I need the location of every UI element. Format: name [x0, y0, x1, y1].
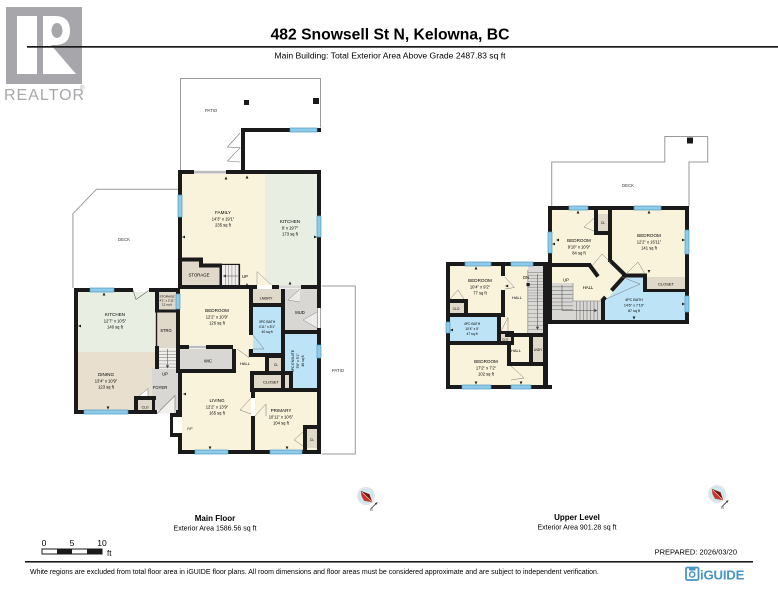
svg-text:4PC BATH: 4PC BATH	[625, 298, 643, 302]
svg-text:KITCHEN: KITCHEN	[105, 312, 125, 317]
svg-text:87 sq ft: 87 sq ft	[628, 309, 640, 313]
svg-text:HALL: HALL	[583, 285, 594, 290]
svg-text:FAMILY: FAMILY	[215, 210, 231, 215]
svg-text:CL: CL	[310, 438, 314, 442]
svg-text:5: 5	[70, 538, 75, 548]
svg-text:165 sq ft: 165 sq ft	[209, 411, 226, 416]
svg-text:12 sq ft: 12 sq ft	[162, 303, 172, 307]
svg-text:0: 0	[42, 538, 47, 548]
svg-text:®: ®	[80, 84, 85, 92]
svg-text:UP: UP	[563, 278, 569, 283]
svg-text:Exterior Area 1586.56 sq ft: Exterior Area 1586.56 sq ft	[174, 526, 257, 533]
svg-text:Exterior Area 901.28 sq ft: Exterior Area 901.28 sq ft	[538, 525, 617, 532]
svg-text:4'11" x 8'1": 4'11" x 8'1"	[259, 325, 276, 329]
svg-text:HALL: HALL	[511, 348, 522, 353]
svg-text:BEDROOM: BEDROOM	[205, 308, 229, 313]
svg-text:BEDROOM: BEDROOM	[474, 359, 498, 364]
svg-text:KITCHEN: KITCHEN	[280, 219, 300, 224]
svg-text:17'2" x 7'2": 17'2" x 7'2"	[476, 366, 497, 371]
svg-text:N: N	[370, 508, 373, 512]
svg-text:84 sq ft: 84 sq ft	[572, 251, 586, 256]
svg-text:WIC: WIC	[204, 359, 212, 364]
svg-text:141 sq ft: 141 sq ft	[641, 246, 658, 251]
svg-text:12'2" x 16'11": 12'2" x 16'11"	[637, 240, 662, 245]
svg-text:123 sq ft: 123 sq ft	[98, 385, 115, 390]
svg-text:UP: UP	[162, 372, 168, 377]
svg-text:F/P: F/P	[187, 427, 193, 431]
svg-text:12'2" x 13'9": 12'2" x 13'9"	[206, 405, 229, 410]
svg-text:CLO: CLO	[502, 338, 509, 342]
svg-text:46 sq ft: 46 sq ft	[301, 355, 305, 366]
svg-text:10'11" x 10'6": 10'11" x 10'6"	[269, 415, 294, 420]
svg-text:PATIO: PATIO	[332, 368, 345, 373]
svg-text:47 sq ft: 47 sq ft	[466, 332, 477, 336]
svg-text:White regions are excluded fro: White regions are excluded from total fl…	[30, 569, 599, 576]
svg-text:LIVING: LIVING	[209, 398, 224, 403]
svg-text:Main Floor: Main Floor	[195, 514, 235, 523]
svg-text:3PC ENSUITE: 3PC ENSUITE	[291, 349, 295, 372]
svg-text:10'4" x 9'2": 10'4" x 9'2"	[470, 285, 491, 290]
svg-text:14'6" x 7'10": 14'6" x 7'10"	[624, 304, 645, 308]
svg-text:HALL: HALL	[512, 295, 523, 300]
svg-text:173 sq ft: 173 sq ft	[282, 232, 299, 237]
svg-text:3PC BATH: 3PC BATH	[259, 320, 276, 324]
svg-text:STORAGE: STORAGE	[189, 273, 210, 278]
svg-text:DINING: DINING	[98, 372, 115, 377]
svg-text:PRIMARY: PRIMARY	[271, 408, 292, 413]
svg-text:4PC BATH: 4PC BATH	[464, 322, 481, 326]
svg-text:9' x 19'7": 9' x 19'7"	[282, 226, 299, 231]
svg-text:DECK: DECK	[118, 237, 130, 242]
svg-text:13'4" x 10'9": 13'4" x 10'9"	[95, 379, 118, 384]
svg-text:CL: CL	[274, 363, 278, 367]
svg-text:FOYER: FOYER	[153, 385, 168, 390]
svg-text:9'10" x 10'9": 9'10" x 10'9"	[568, 245, 591, 250]
svg-text:77 sq ft: 77 sq ft	[473, 291, 487, 296]
svg-text:102 sq ft: 102 sq ft	[478, 372, 495, 377]
svg-text:PATIO: PATIO	[205, 108, 218, 113]
svg-text:CL: CL	[601, 221, 605, 225]
svg-text:LNDY: LNDY	[534, 348, 543, 352]
svg-text:PREPARED: 2026/03/20: PREPARED: 2026/03/20	[655, 548, 737, 557]
svg-text:104 sq ft: 104 sq ft	[273, 421, 290, 426]
svg-text:CLO: CLO	[453, 307, 460, 311]
svg-text:482 Snowsell St N, Kelowna, BC: 482 Snowsell St N, Kelowna, BC	[271, 27, 510, 44]
svg-text:REALTOR: REALTOR	[4, 87, 85, 104]
svg-text:N: N	[721, 506, 724, 510]
svg-text:DECK: DECK	[622, 183, 634, 188]
svg-text:CLOSET: CLOSET	[658, 282, 675, 287]
svg-text:Main Building: Total Exterior: Main Building: Total Exterior Area Above…	[274, 51, 506, 61]
svg-text:126 sq ft: 126 sq ft	[209, 321, 226, 326]
svg-text:DN: DN	[523, 275, 529, 280]
svg-text:235 sq ft: 235 sq ft	[215, 223, 232, 228]
svg-text:MUD: MUD	[295, 310, 305, 315]
svg-text:12'2" x 10'9": 12'2" x 10'9"	[206, 315, 229, 320]
svg-text:BEDROOM: BEDROOM	[567, 238, 591, 243]
svg-text:UP: UP	[242, 274, 248, 279]
svg-text:STRG: STRG	[160, 328, 171, 333]
svg-text:CLO: CLO	[142, 406, 149, 410]
svg-text:14'3" x 19'1": 14'3" x 19'1"	[212, 217, 235, 222]
svg-text:10'4" x 5': 10'4" x 5'	[465, 327, 479, 331]
svg-text:5'6" x 9'1": 5'6" x 9'1"	[296, 353, 300, 369]
svg-text:iGUIDE: iGUIDE	[700, 568, 745, 583]
svg-text:Upper Level: Upper Level	[554, 513, 600, 522]
svg-text:HALL: HALL	[240, 361, 251, 366]
svg-text:BEDROOM: BEDROOM	[637, 233, 661, 238]
svg-text:ft: ft	[107, 549, 112, 558]
svg-text:BEDROOM: BEDROOM	[468, 278, 492, 283]
svg-text:CLOSET: CLOSET	[263, 380, 280, 385]
svg-text:LNDRY: LNDRY	[260, 297, 273, 301]
svg-text:10: 10	[97, 538, 107, 548]
svg-text:140 sq ft: 140 sq ft	[107, 325, 124, 330]
svg-text:12'7" x 10'5": 12'7" x 10'5"	[104, 319, 127, 324]
svg-text:40 sq ft: 40 sq ft	[261, 330, 272, 334]
